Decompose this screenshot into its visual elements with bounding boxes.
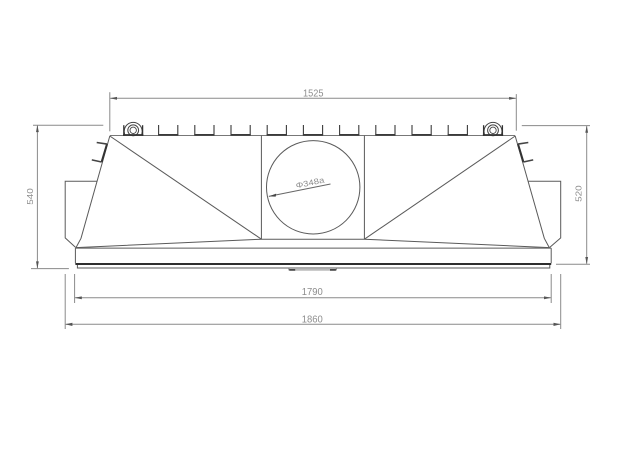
svg-text:520: 520: [574, 185, 584, 202]
svg-text:1860: 1860: [302, 313, 323, 325]
svg-text:540: 540: [25, 188, 35, 205]
svg-text:1790: 1790: [302, 286, 323, 298]
svg-text:1525: 1525: [303, 88, 324, 100]
